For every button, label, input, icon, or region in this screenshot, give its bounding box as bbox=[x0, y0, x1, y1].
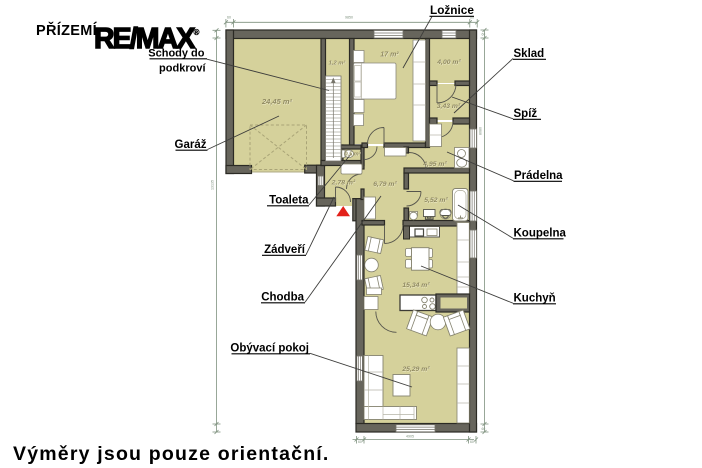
svg-text:Garáž: Garáž bbox=[175, 139, 207, 151]
svg-text:5,52 m²: 5,52 m² bbox=[424, 197, 448, 204]
svg-text:Chodba: Chodba bbox=[261, 292, 304, 304]
svg-text:2,78 m²: 2,78 m² bbox=[331, 180, 356, 187]
svg-text:Koupelna: Koupelna bbox=[514, 228, 567, 240]
svg-text:24,45 m²: 24,45 m² bbox=[261, 97, 293, 106]
svg-text:13135: 13135 bbox=[211, 180, 215, 190]
svg-text:Kuchyň: Kuchyň bbox=[514, 293, 556, 305]
svg-text:60: 60 bbox=[470, 440, 474, 444]
svg-text:9850: 9850 bbox=[345, 16, 353, 20]
svg-text:25,29 m²: 25,29 m² bbox=[401, 366, 430, 373]
svg-text:4,00 m²: 4,00 m² bbox=[436, 59, 461, 66]
svg-text:podkroví: podkroví bbox=[159, 63, 206, 75]
svg-text:15,34 m²: 15,34 m² bbox=[402, 282, 430, 289]
svg-text:6,79 m²: 6,79 m² bbox=[373, 181, 397, 188]
svg-text:Toaleta: Toaleta bbox=[269, 195, 309, 207]
svg-text:Obývací pokoj: Obývací pokoj bbox=[230, 343, 309, 355]
svg-text:17 m²: 17 m² bbox=[380, 52, 399, 59]
svg-text:60: 60 bbox=[482, 33, 486, 37]
svg-text:4905: 4905 bbox=[406, 435, 414, 439]
svg-text:1,2 m²: 1,2 m² bbox=[329, 60, 347, 67]
svg-text:Prádelna: Prádelna bbox=[514, 170, 563, 182]
svg-text:0,5 m²: 0,5 m² bbox=[345, 150, 361, 157]
svg-text:8080: 8080 bbox=[479, 127, 483, 135]
svg-text:4,95 m²: 4,95 m² bbox=[422, 161, 447, 168]
svg-text:Spíž: Spíž bbox=[514, 108, 538, 120]
svg-text:Zádveří: Zádveří bbox=[264, 244, 306, 256]
svg-text:Ložnice: Ložnice bbox=[430, 3, 474, 17]
svg-text:Sklad: Sklad bbox=[514, 48, 545, 60]
svg-text:60: 60 bbox=[358, 440, 362, 444]
svg-text:60: 60 bbox=[227, 16, 231, 20]
svg-text:60: 60 bbox=[482, 427, 486, 431]
svg-text:3,43 m²: 3,43 m² bbox=[437, 103, 461, 110]
